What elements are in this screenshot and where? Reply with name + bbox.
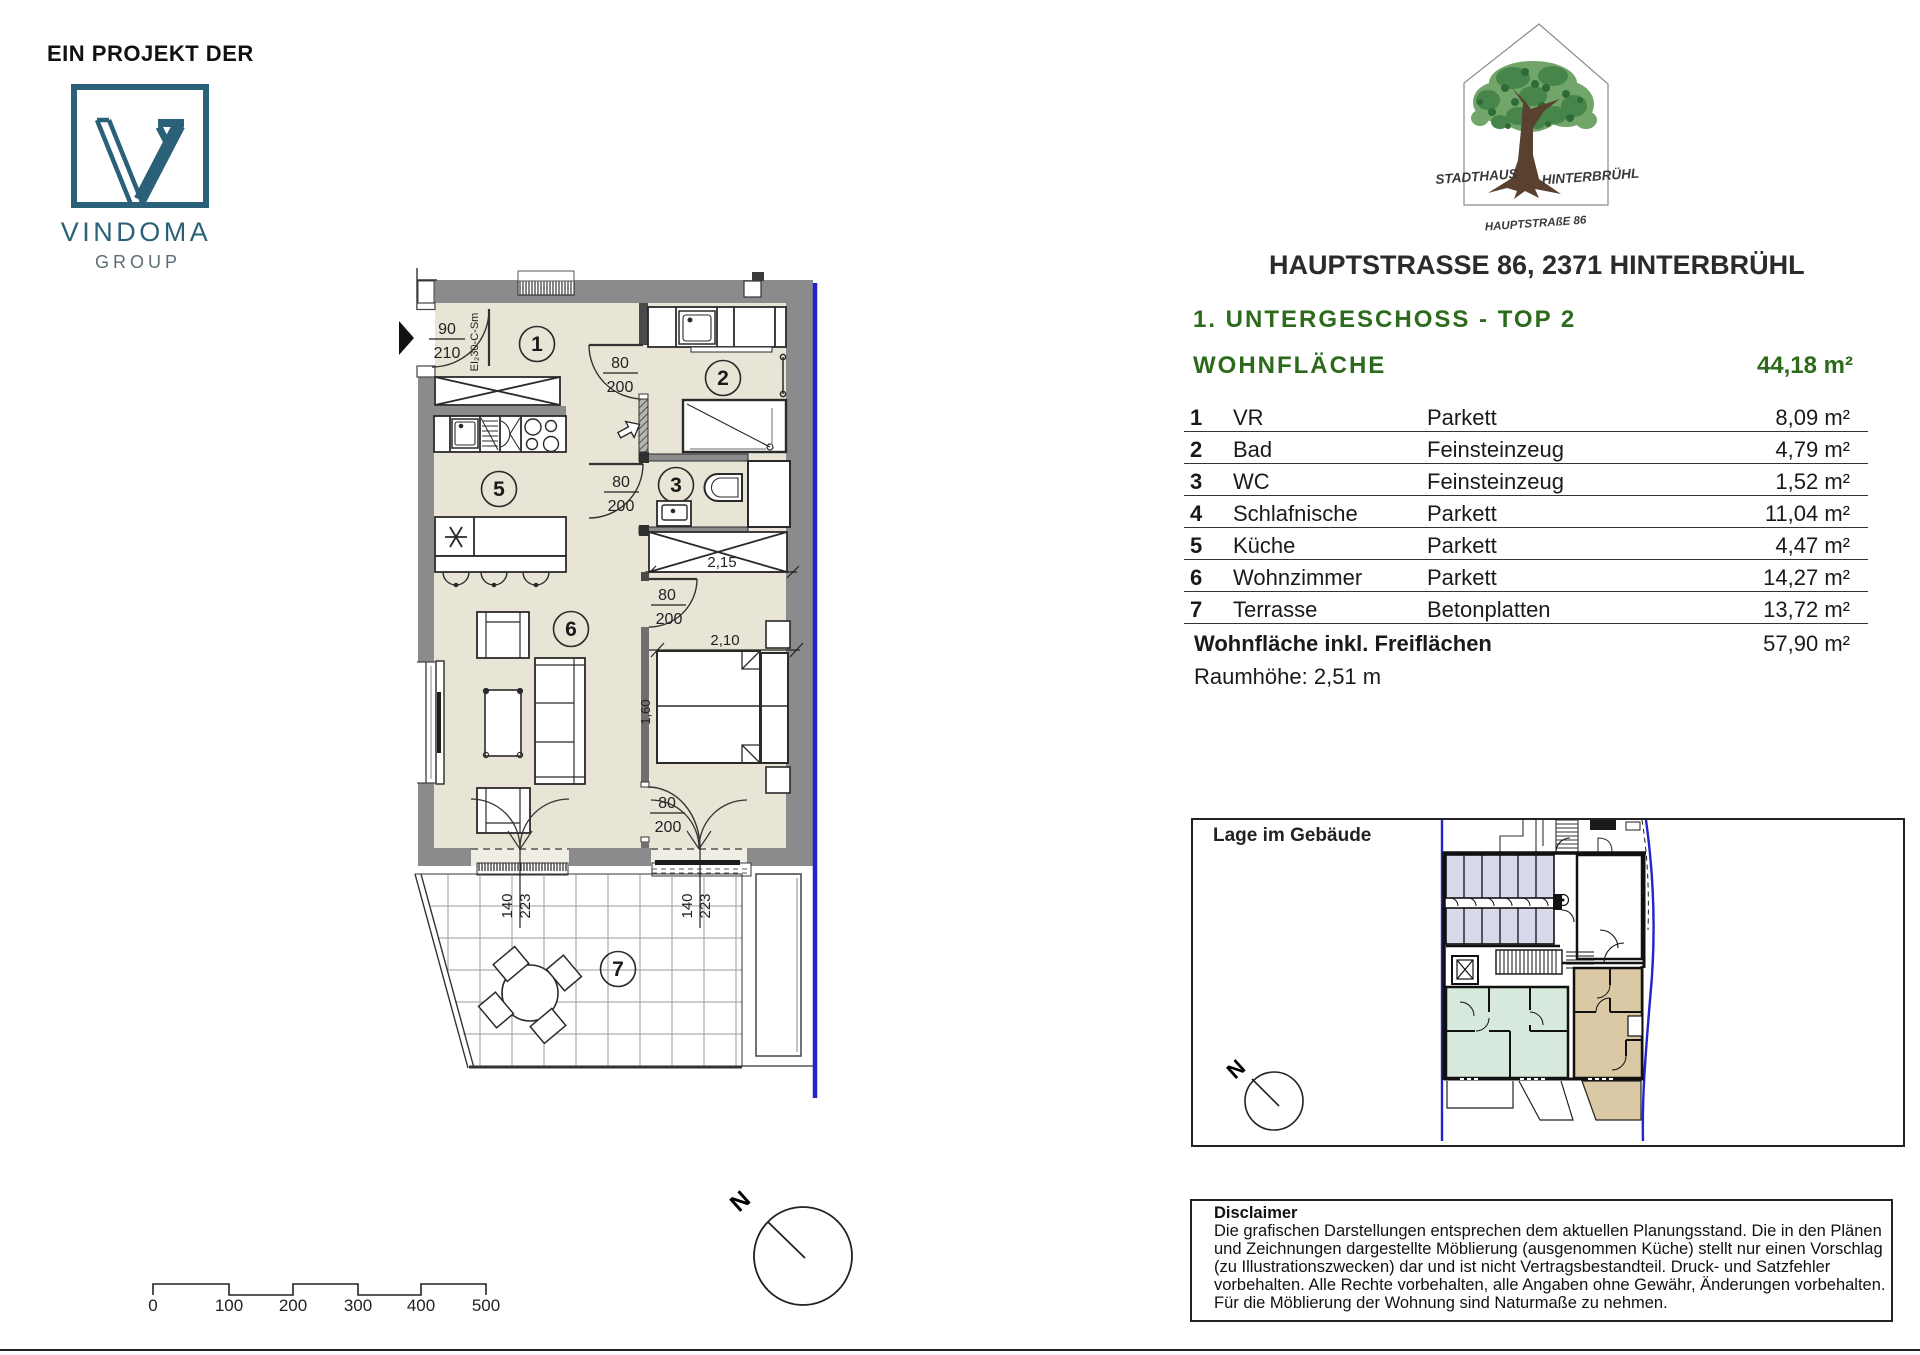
svg-text:200: 200 <box>279 1296 307 1315</box>
svg-text:210: 210 <box>434 345 461 362</box>
svg-text:1,60: 1,60 <box>638 699 653 724</box>
svg-text:3: 3 <box>670 474 682 497</box>
svg-text:6: 6 <box>565 618 577 641</box>
svg-text:VINDOMA: VINDOMA <box>61 217 212 247</box>
svg-text:400: 400 <box>407 1296 435 1315</box>
svg-text:2,10: 2,10 <box>710 632 739 649</box>
svg-text:HAUPTSTRAßE 86: HAUPTSTRAßE 86 <box>1484 214 1587 233</box>
svg-text:EI₂30-C-Sm: EI₂30-C-Sm <box>469 313 481 372</box>
svg-text:223: 223 <box>517 893 534 918</box>
svg-text:140: 140 <box>679 893 696 918</box>
svg-text:80: 80 <box>611 355 629 372</box>
svg-text:500: 500 <box>472 1296 500 1315</box>
svg-text:2: 2 <box>717 367 729 390</box>
svg-text:140: 140 <box>499 893 516 918</box>
svg-text:N: N <box>1223 1058 1250 1084</box>
svg-text:5: 5 <box>493 478 505 501</box>
svg-text:0: 0 <box>148 1296 157 1315</box>
svg-text:100: 100 <box>215 1296 243 1315</box>
svg-text:90: 90 <box>438 321 456 338</box>
svg-text:GROUP: GROUP <box>95 252 181 272</box>
svg-text:2,15: 2,15 <box>707 554 736 571</box>
svg-text:80: 80 <box>612 474 630 491</box>
svg-text:1: 1 <box>531 333 543 356</box>
svg-text:80: 80 <box>658 587 676 604</box>
svg-text:N: N <box>725 1186 756 1218</box>
svg-text:HINTERBRÜHL: HINTERBRÜHL <box>1541 166 1639 188</box>
svg-text:80: 80 <box>658 795 676 812</box>
svg-text:200: 200 <box>656 611 683 628</box>
svg-text:223: 223 <box>697 893 714 918</box>
svg-text:200: 200 <box>608 498 635 515</box>
svg-text:7: 7 <box>612 958 624 981</box>
svg-text:200: 200 <box>607 379 634 396</box>
svg-text:200: 200 <box>655 819 682 836</box>
svg-text:300: 300 <box>344 1296 372 1315</box>
svg-text:2: 2 <box>395 330 396 338</box>
